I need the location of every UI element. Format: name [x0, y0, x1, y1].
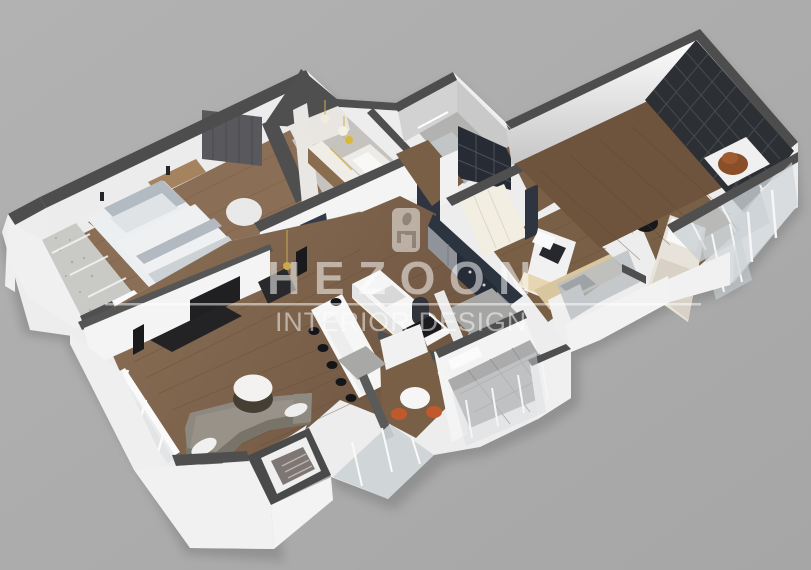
svg-text:INTERIOR DESIGN: INTERIOR DESIGN: [275, 307, 527, 337]
svg-text:HEZOON: HEZOON: [267, 252, 545, 304]
